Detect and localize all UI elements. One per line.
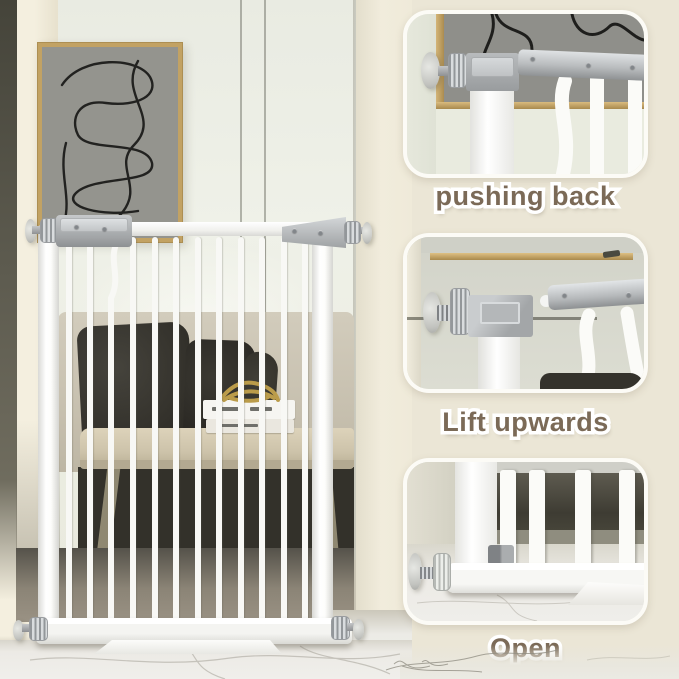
- step-label-lift-upwards: Lift upwards Lift upwards: [403, 405, 648, 439]
- tension-knob: [29, 617, 48, 641]
- screw-dot: [586, 62, 591, 67]
- screw-dot: [626, 292, 631, 297]
- gate-post-closeup: [470, 90, 514, 174]
- screw-dot: [74, 224, 79, 229]
- floor-twig-veins: [382, 636, 672, 679]
- screw-dot: [292, 228, 297, 233]
- label-text: pushing back: [403, 179, 648, 213]
- panel-open: [403, 458, 648, 625]
- dark-pillow-closeup: [540, 373, 644, 389]
- screw-dot: [530, 56, 535, 61]
- tension-knob: [433, 553, 451, 591]
- room-scene: [0, 0, 412, 679]
- latch-box-top: [471, 57, 514, 77]
- wall-mount-disc: [353, 619, 364, 640]
- gate-latch-top: [60, 218, 128, 232]
- latch-clip: [488, 545, 514, 565]
- gate-bar-closeup: [619, 470, 635, 566]
- wall-strip-left: [407, 237, 421, 389]
- gate-bars-closeup: [547, 69, 644, 174]
- latch-handle-bar: [517, 49, 646, 81]
- gate-curved-bar: [0, 0, 412, 679]
- gate-post-right: [312, 238, 333, 644]
- product-instruction-image: pushing back pushing back Lift upwards: [0, 0, 679, 679]
- gate-threshold-ramp: [94, 640, 282, 654]
- tension-knob: [344, 221, 361, 244]
- tension-knob: [448, 53, 467, 88]
- label-text: Lift upwards: [403, 405, 648, 439]
- gate-bar-closeup: [529, 470, 545, 566]
- gate-post-left: [38, 224, 59, 644]
- wall-mount-disc: [362, 222, 372, 244]
- panel-pushing-back: [403, 10, 648, 178]
- panel-lift-upwards: [403, 233, 648, 393]
- screw-dot: [562, 292, 567, 297]
- step-label-pushing-back: pushing back pushing back: [403, 179, 648, 213]
- latch-box-inset: [480, 302, 520, 324]
- screw-dot: [318, 230, 323, 235]
- screw-dot: [630, 64, 635, 69]
- gate-bar-closeup: [575, 470, 591, 566]
- screw-dot: [102, 226, 107, 231]
- tension-knob: [450, 288, 470, 335]
- gate-post-closeup: [478, 337, 520, 389]
